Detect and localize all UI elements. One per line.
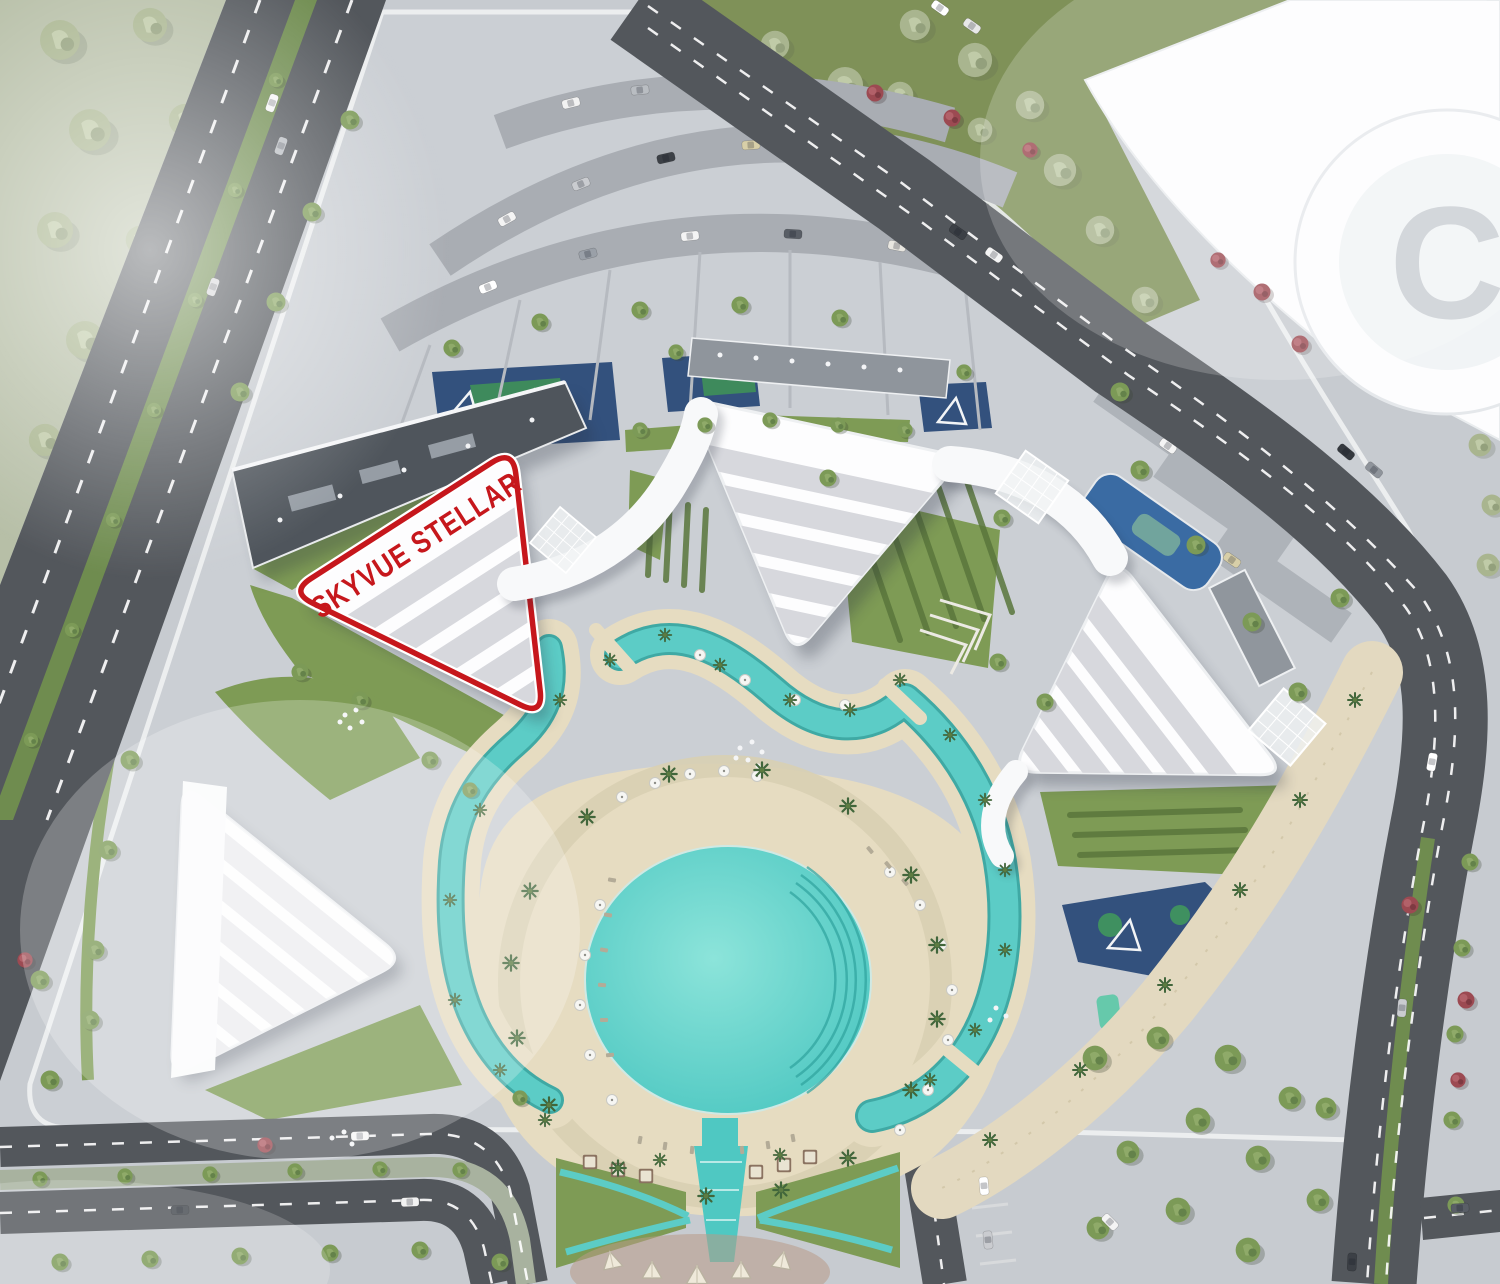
master-plan-screenshot: C [0,0,1500,1284]
pool-weir [702,1118,738,1150]
site-plan-rendering: C [0,0,1500,1284]
